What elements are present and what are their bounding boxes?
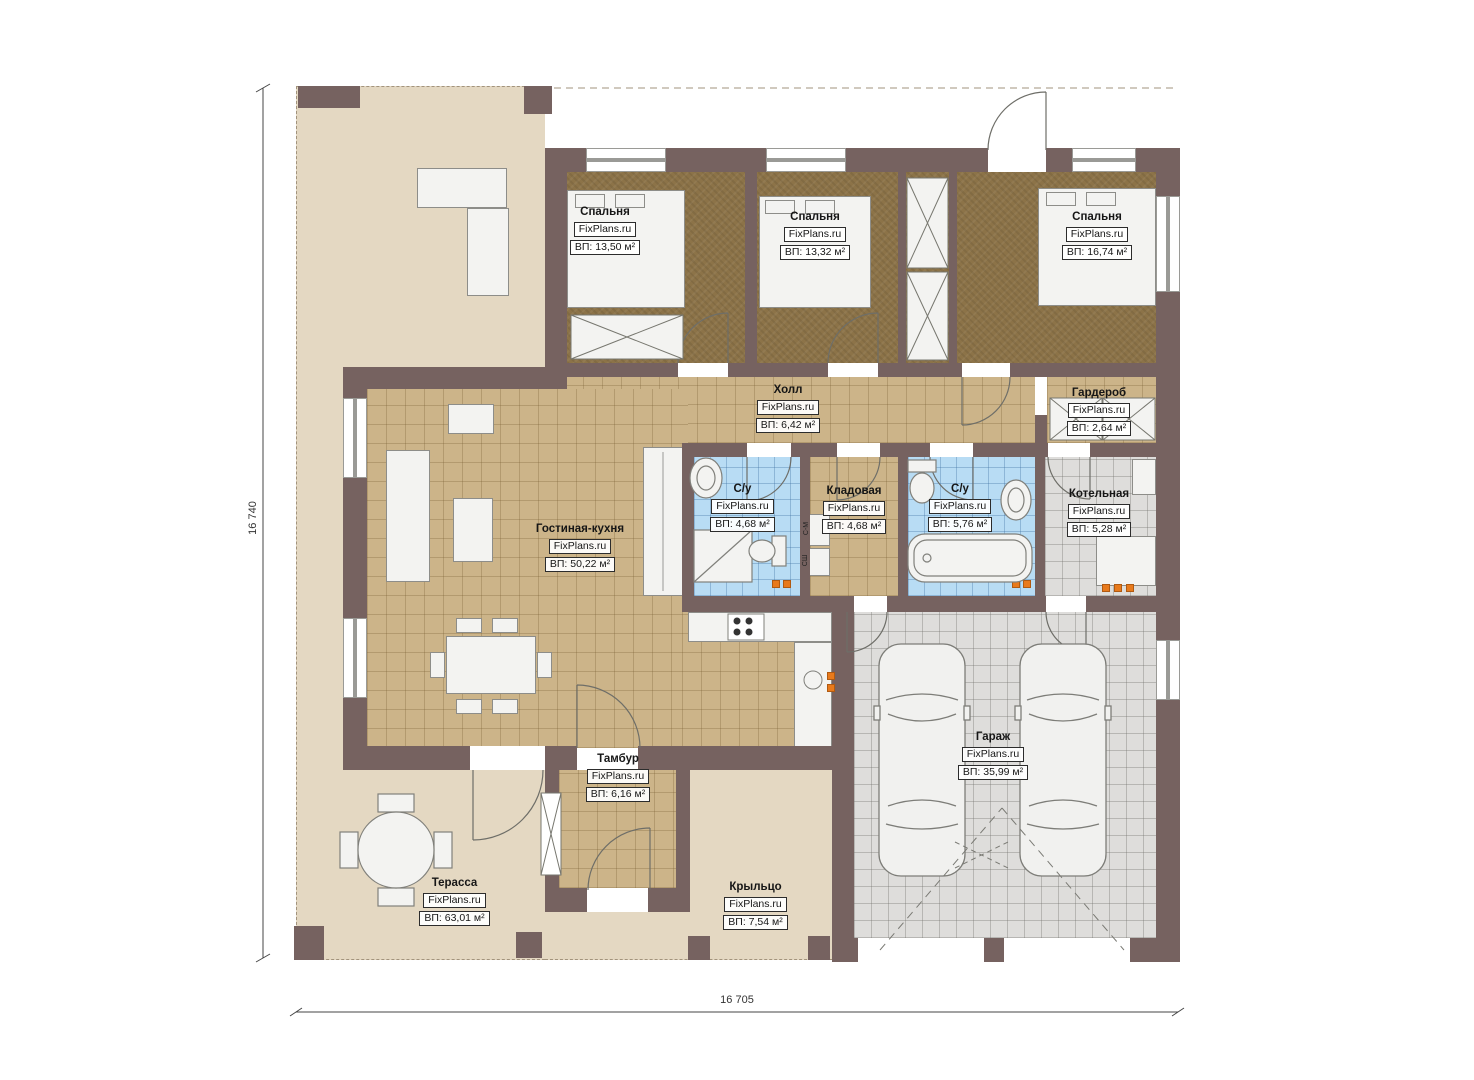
heat-dot	[827, 672, 835, 680]
wall-west-bedroom	[545, 148, 567, 389]
kitchen-counter	[688, 612, 832, 642]
heat-dot	[1012, 580, 1020, 588]
window-bedroom2	[766, 148, 846, 172]
room-name: Гардероб	[1042, 386, 1156, 400]
heat-dot	[1023, 580, 1031, 588]
dryer-label: СШ	[802, 555, 809, 566]
room-label-bedroom1: Спальня FixPlans.ru ВП: 13,50 м²	[545, 205, 665, 255]
wall-bath-south	[682, 596, 847, 612]
room-label-porch: Крыльцо FixPlans.ru ВП: 7,54 м²	[703, 880, 808, 930]
room-label-living-kitchen: Гостиная-кухня FixPlans.ru ВП: 50,22 м²	[515, 522, 645, 572]
heat-dot	[1102, 584, 1110, 592]
wall-south	[343, 746, 470, 770]
room-label-bathroom2: С/у FixPlans.ru ВП: 5,76 м²	[905, 482, 1015, 532]
dim-ticks	[290, 1008, 1184, 1016]
room-name: Кладовая	[806, 484, 902, 498]
room-area: ВП: 63,01 м²	[419, 911, 489, 926]
dimension-left: 16 740	[247, 493, 259, 543]
heat-dot	[772, 580, 780, 588]
watermark: FixPlans.ru	[574, 222, 637, 237]
terrace-sofa	[417, 168, 507, 208]
wall-bath-north	[688, 443, 747, 457]
porch-pillar	[808, 936, 830, 960]
chair	[456, 618, 482, 633]
watermark: FixPlans.ru	[1068, 504, 1131, 519]
chair	[492, 699, 518, 714]
chair	[537, 652, 552, 678]
watermark: FixPlans.ru	[1066, 227, 1129, 242]
dining-table	[446, 636, 536, 694]
room-name: С/у	[905, 482, 1015, 496]
room-name: Тамбур	[568, 752, 668, 766]
tv-stand	[448, 404, 494, 434]
chair	[430, 652, 445, 678]
room-area: ВП: 50,22 м²	[545, 557, 615, 572]
wall-bath-south	[1086, 596, 1158, 612]
room-name: Крыльцо	[703, 880, 808, 894]
wall-bath-north	[1035, 443, 1048, 457]
room-area: ВП: 5,28 м²	[1067, 522, 1131, 537]
room-area: ВП: 4,68 м²	[710, 517, 774, 532]
window-living-west	[343, 398, 367, 478]
room-name: Гараж	[935, 730, 1051, 744]
wall-bath-north	[1090, 443, 1158, 457]
room-label-boiler: Котельная FixPlans.ru ВП: 5,28 м²	[1042, 487, 1156, 537]
room-area: ВП: 13,50 м²	[570, 240, 640, 255]
wall-closet	[949, 148, 957, 377]
room-label-wardrobe: Гардероб FixPlans.ru ВП: 2,64 м²	[1042, 386, 1156, 436]
entry-door-opening	[988, 148, 1046, 172]
pillow	[1086, 192, 1116, 206]
room-name: С/у	[690, 482, 795, 496]
room-label-tambour: Тамбур FixPlans.ru ВП: 6,16 м²	[568, 752, 668, 802]
watermark: FixPlans.ru	[929, 499, 992, 514]
room-name: Котельная	[1042, 487, 1156, 501]
room-name: Спальня	[757, 210, 873, 224]
heat-dot	[827, 684, 835, 692]
room-area: ВП: 5,76 м²	[928, 517, 992, 532]
room-label-garage: Гараж FixPlans.ru ВП: 35,99 м²	[935, 730, 1051, 780]
sofa	[386, 450, 430, 582]
wall-living-north	[345, 367, 545, 389]
terrace-pillar	[298, 86, 360, 108]
room-area: ВП: 6,16 м²	[586, 787, 650, 802]
room-area: ВП: 6,42 м²	[756, 418, 820, 433]
window-bedroom1	[586, 148, 666, 172]
room-area: ВП: 35,99 м²	[958, 765, 1028, 780]
wall-garage-west	[832, 596, 854, 962]
room-area: ВП: 7,54 м²	[723, 915, 787, 930]
wall-bedrooms-south	[545, 363, 678, 377]
room-label-terrace: Терасса FixPlans.ru ВП: 63,01 м²	[402, 876, 507, 926]
wall-tambour-south	[648, 888, 690, 912]
heat-dot	[1126, 584, 1134, 592]
wall-garage-south	[1130, 938, 1180, 962]
floor-plan-canvas: С-М СШ	[0, 0, 1474, 1080]
window-bedroom3-east	[1156, 196, 1180, 292]
tall-cupboard	[643, 447, 683, 596]
wall-bedrooms-south	[1010, 363, 1158, 377]
watermark: FixPlans.ru	[711, 499, 774, 514]
wall-garage-south	[832, 938, 858, 962]
garage-door-opening	[858, 938, 984, 962]
room-area: ВП: 13,32 м²	[780, 245, 850, 260]
room-label-bedroom2: Спальня FixPlans.ru ВП: 13,32 м²	[757, 210, 873, 260]
watermark: FixPlans.ru	[757, 400, 820, 415]
room-area: ВП: 4,68 м²	[822, 519, 886, 534]
coffee-table	[453, 498, 493, 562]
watermark: FixPlans.ru	[1068, 403, 1131, 418]
wall-bath-south	[887, 596, 1046, 612]
terrace-door-opening	[470, 746, 545, 770]
room-name: Спальня	[1038, 210, 1156, 224]
room-label-bathroom1: С/у FixPlans.ru ВП: 4,68 м²	[690, 482, 795, 532]
terrace-pillar	[516, 932, 542, 958]
garage-door-opening	[1004, 938, 1130, 962]
watermark: FixPlans.ru	[724, 897, 787, 912]
terrace-pillar	[294, 926, 324, 960]
wall-tambour-south	[545, 888, 587, 912]
watermark: FixPlans.ru	[784, 227, 847, 242]
window-garage-east	[1156, 640, 1180, 700]
wall-bedrooms-south	[878, 363, 962, 377]
pillow	[1046, 192, 1076, 206]
window-living-west	[343, 618, 367, 698]
room-area: ВП: 16,74 м²	[1062, 245, 1132, 260]
chair	[492, 618, 518, 633]
wall-bath-north	[880, 443, 930, 457]
watermark: FixPlans.ru	[587, 769, 650, 784]
watermark: FixPlans.ru	[423, 893, 486, 908]
heat-dot	[1114, 584, 1122, 592]
room-area: ВП: 2,64 м²	[1067, 421, 1131, 436]
door-entry-exterior	[988, 92, 1046, 150]
boiler-unit	[1096, 536, 1156, 586]
watermark: FixPlans.ru	[823, 501, 886, 516]
room-name: Гостиная-кухня	[515, 522, 645, 536]
room-name: Холл	[733, 383, 843, 397]
terrace-sofa	[467, 208, 509, 296]
window-bedroom3	[1072, 148, 1136, 172]
room-label-hall: Холл FixPlans.ru ВП: 6,42 м²	[733, 383, 843, 433]
front-door-opening	[587, 888, 648, 912]
wall-bed1-bed2	[745, 148, 757, 377]
room-name: Терасса	[402, 876, 507, 890]
wall-bedrooms-south	[728, 363, 828, 377]
kitchen-counter	[794, 642, 832, 748]
chair	[456, 699, 482, 714]
room-label-bedroom3: Спальня FixPlans.ru ВП: 16,74 м²	[1038, 210, 1156, 260]
terrace-pillar	[524, 86, 552, 114]
heat-dot	[783, 580, 791, 588]
room-name: Спальня	[545, 205, 665, 219]
wall-bath-north	[791, 443, 837, 457]
washing-machine-label: С-М	[803, 522, 810, 535]
wall-garage-south	[984, 938, 1004, 962]
wall-closet	[898, 148, 906, 377]
room-label-storage: Кладовая FixPlans.ru ВП: 4,68 м²	[806, 484, 902, 534]
dimension-bottom: 16 705	[697, 994, 777, 1006]
watermark: FixPlans.ru	[549, 539, 612, 554]
porch-pillar	[688, 936, 710, 960]
watermark: FixPlans.ru	[962, 747, 1025, 762]
